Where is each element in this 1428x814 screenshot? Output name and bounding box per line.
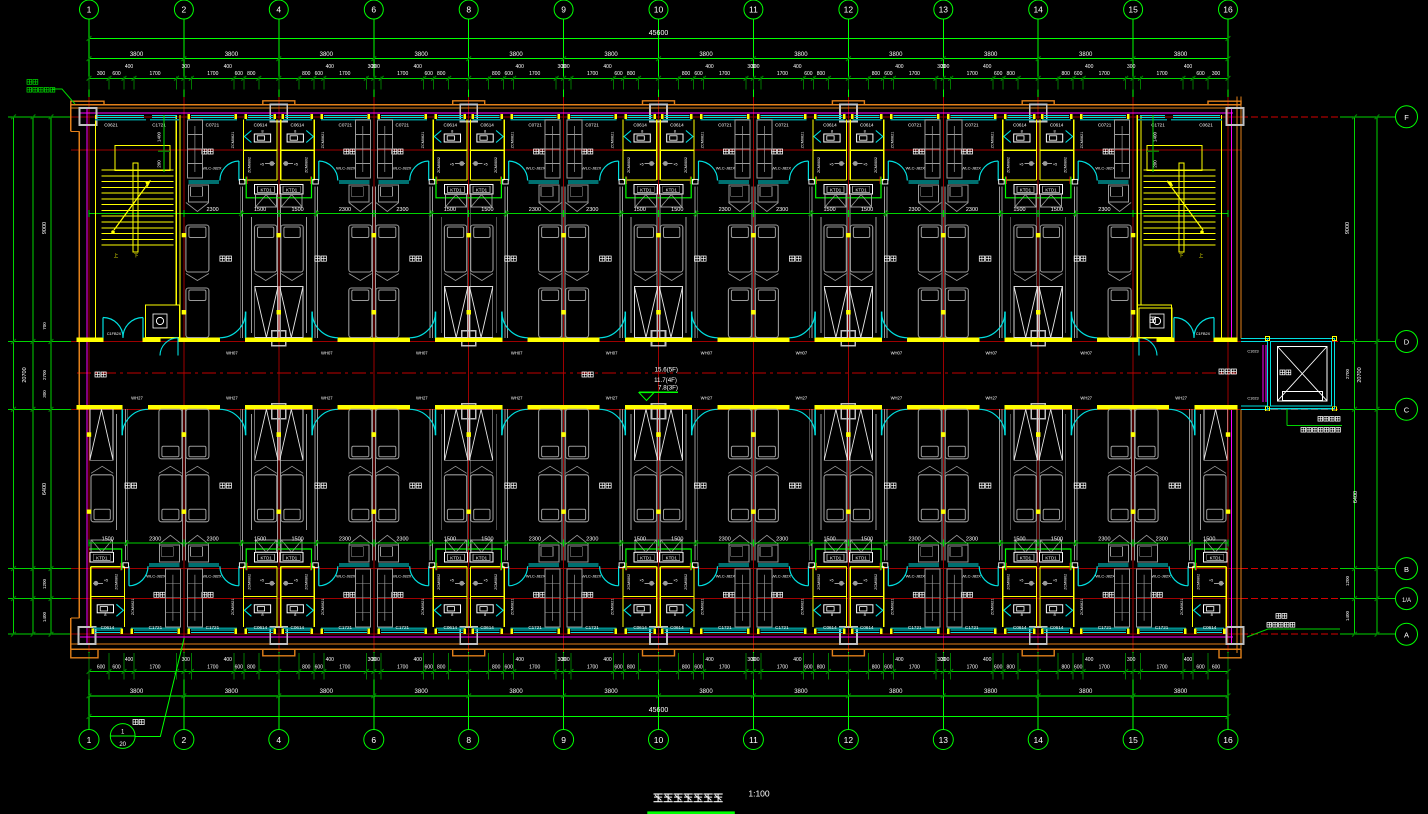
- svg-text:KTD1: KTD1: [640, 555, 652, 560]
- svg-text:1700: 1700: [207, 71, 218, 77]
- svg-text:ZCM0802: ZCM0802: [817, 574, 821, 590]
- svg-text:400: 400: [1184, 657, 1193, 663]
- svg-text:1500: 1500: [1013, 537, 1025, 543]
- svg-text:9: 9: [561, 735, 566, 745]
- svg-text:KTD1: KTD1: [1210, 555, 1222, 560]
- svg-text:300: 300: [941, 657, 950, 663]
- svg-text:WLC-J82X: WLC-J82X: [582, 573, 602, 578]
- svg-text:WLC-J82X: WLC-J82X: [962, 166, 982, 171]
- svg-text:C1721: C1721: [718, 625, 732, 630]
- svg-text:3800: 3800: [794, 52, 808, 58]
- svg-text:ZCM0802: ZCM0802: [1007, 157, 1011, 173]
- svg-text:2300: 2300: [339, 537, 351, 543]
- svg-text:1700: 1700: [777, 71, 788, 77]
- svg-text:C0614: C0614: [444, 625, 458, 630]
- svg-text:1500: 1500: [671, 537, 683, 543]
- svg-text:WLC-J82X: WLC-J82X: [906, 166, 926, 171]
- svg-text:WLC-J82X: WLC-J82X: [526, 166, 546, 171]
- svg-text:15: 15: [1128, 735, 1138, 745]
- svg-text:KTD1: KTD1: [286, 187, 298, 192]
- svg-text:600: 600: [694, 664, 703, 670]
- svg-text:300: 300: [372, 657, 381, 663]
- svg-text:WLC-J82X: WLC-J82X: [582, 166, 602, 171]
- svg-text:1700: 1700: [1099, 664, 1110, 670]
- svg-text:ZCM0802: ZCM0802: [1064, 157, 1068, 173]
- svg-text:WH27: WH27: [1080, 396, 1092, 401]
- svg-text:KTD1: KTD1: [830, 555, 842, 560]
- svg-text:600: 600: [1212, 664, 1221, 670]
- svg-text:WH07: WH07: [606, 351, 618, 356]
- svg-text:C1721: C1721: [528, 625, 542, 630]
- svg-text:3800: 3800: [699, 52, 713, 58]
- svg-text:WLC-J82X: WLC-J82X: [526, 573, 546, 578]
- svg-text:400: 400: [326, 657, 335, 663]
- svg-text:1: 1: [87, 5, 92, 15]
- svg-text:×5: ×5: [829, 163, 833, 167]
- svg-text:C1721: C1721: [1155, 625, 1169, 630]
- svg-text:C0614: C0614: [860, 123, 874, 128]
- svg-text:1700: 1700: [1156, 71, 1167, 77]
- svg-text:ZCM0802: ZCM0802: [304, 574, 308, 590]
- svg-text:300: 300: [751, 657, 760, 663]
- svg-text:ZCM0802: ZCM0802: [494, 574, 498, 590]
- svg-text:400: 400: [1085, 657, 1094, 663]
- svg-text:7.8(3F): 7.8(3F): [658, 385, 678, 392]
- svg-text:400: 400: [895, 64, 904, 70]
- svg-text:KTD1: KTD1: [1045, 187, 1057, 192]
- svg-text:1500: 1500: [1203, 537, 1215, 543]
- svg-text:800: 800: [247, 71, 256, 77]
- svg-text:400: 400: [705, 64, 714, 70]
- svg-text:ZCM0821: ZCM0821: [231, 132, 235, 149]
- svg-text:15.6(5F): 15.6(5F): [655, 367, 678, 374]
- svg-text:WLC-J82X: WLC-J82X: [146, 573, 166, 578]
- svg-text:C0721: C0721: [908, 123, 922, 128]
- svg-text:600: 600: [804, 664, 813, 670]
- svg-text:KTD1: KTD1: [666, 187, 678, 192]
- svg-text:600: 600: [235, 664, 244, 670]
- svg-text:C0621: C0621: [104, 123, 118, 128]
- svg-text:1500: 1500: [254, 537, 266, 543]
- svg-text:WLC-J82X: WLC-J82X: [1151, 573, 1171, 578]
- svg-text:WH27: WH27: [511, 396, 523, 401]
- svg-text:KTD1: KTD1: [260, 187, 272, 192]
- svg-text:C0614: C0614: [254, 625, 268, 630]
- svg-text:600: 600: [112, 71, 121, 77]
- svg-text:ZCM0802: ZCM0802: [874, 574, 878, 590]
- svg-text:C1721: C1721: [908, 625, 922, 630]
- svg-text:WH07: WH07: [1080, 351, 1092, 356]
- svg-text:1400: 1400: [1345, 610, 1350, 621]
- svg-text:WLC-J82X: WLC-J82X: [336, 573, 356, 578]
- svg-text:3800: 3800: [225, 689, 239, 695]
- svg-text:C1721: C1721: [585, 625, 599, 630]
- svg-text:C0721: C0721: [718, 123, 732, 128]
- svg-text:1:100: 1:100: [748, 789, 770, 799]
- svg-text:800: 800: [682, 71, 691, 77]
- svg-text:WH27: WH27: [321, 396, 333, 401]
- svg-text:300: 300: [182, 64, 191, 70]
- svg-text:上: 上: [1199, 252, 1204, 258]
- svg-text:200: 200: [157, 160, 162, 168]
- svg-text:600: 600: [694, 71, 703, 77]
- svg-text:ZCM0802: ZCM0802: [1064, 574, 1068, 590]
- svg-text:3800: 3800: [604, 689, 618, 695]
- svg-text:1500: 1500: [861, 537, 873, 543]
- svg-text:300: 300: [97, 71, 106, 77]
- svg-text:600: 600: [1074, 71, 1083, 77]
- svg-text:2: 2: [182, 5, 187, 15]
- svg-text:1500: 1500: [444, 537, 456, 543]
- svg-text:12: 12: [844, 5, 854, 15]
- svg-text:WH07: WH07: [416, 351, 428, 356]
- svg-text:800: 800: [872, 71, 881, 77]
- svg-text:8: 8: [466, 735, 471, 745]
- svg-text:C1023: C1023: [1247, 350, 1258, 354]
- svg-text:ZCM0821: ZCM0821: [231, 598, 235, 615]
- svg-text:600: 600: [884, 71, 893, 77]
- svg-text:1700: 1700: [587, 664, 598, 670]
- svg-text:16: 16: [1223, 5, 1233, 15]
- svg-text:1500: 1500: [1013, 207, 1025, 213]
- svg-text:ZCM0821: ZCM0821: [321, 598, 325, 615]
- svg-text:WH27: WH27: [796, 396, 808, 401]
- svg-text:400: 400: [983, 657, 992, 663]
- svg-text:×5: ×5: [1053, 163, 1057, 167]
- svg-text:C0614: C0614: [480, 625, 494, 630]
- svg-text:400: 400: [793, 64, 802, 70]
- svg-text:400: 400: [125, 657, 134, 663]
- svg-text:3800: 3800: [984, 52, 998, 58]
- svg-text:C0614: C0614: [480, 123, 494, 128]
- svg-text:1200: 1200: [42, 578, 47, 589]
- svg-text:600: 600: [1196, 664, 1205, 670]
- svg-text:800: 800: [302, 71, 311, 77]
- svg-text:ZCM0821: ZCM0821: [700, 598, 704, 615]
- svg-text:WH07: WH07: [511, 351, 523, 356]
- svg-text:2700: 2700: [1345, 368, 1350, 379]
- svg-text:3800: 3800: [509, 689, 523, 695]
- svg-text:1700: 1700: [207, 664, 218, 670]
- svg-text:300: 300: [941, 64, 950, 70]
- svg-text:WH27: WH27: [226, 396, 238, 401]
- svg-text:1500: 1500: [481, 537, 493, 543]
- svg-text:400: 400: [1184, 64, 1193, 70]
- svg-text:1500: 1500: [671, 207, 683, 213]
- svg-text:800: 800: [872, 664, 881, 670]
- svg-text:400: 400: [983, 64, 992, 70]
- svg-text:C0614: C0614: [823, 123, 837, 128]
- svg-text:KTD1: KTD1: [476, 187, 488, 192]
- svg-text:11: 11: [749, 5, 758, 15]
- svg-text:800: 800: [1062, 71, 1071, 77]
- svg-text:2300: 2300: [586, 537, 598, 543]
- svg-text:1200: 1200: [1345, 575, 1350, 586]
- svg-text:3800: 3800: [794, 689, 808, 695]
- svg-text:ZCM0802: ZCM0802: [684, 157, 688, 173]
- svg-text:4: 4: [276, 5, 281, 15]
- svg-text:KTD1: KTD1: [286, 555, 298, 560]
- svg-text:600: 600: [1196, 71, 1205, 77]
- svg-text:WLC-J82X: WLC-J82X: [772, 166, 792, 171]
- svg-text:WH27: WH27: [1175, 396, 1187, 401]
- svg-text:2: 2: [182, 735, 187, 745]
- svg-text:400: 400: [414, 64, 423, 70]
- svg-text:ZCM0821: ZCM0821: [890, 132, 894, 149]
- svg-text:600: 600: [994, 664, 1003, 670]
- svg-text:×5: ×5: [829, 578, 833, 582]
- svg-text:×5: ×5: [484, 578, 488, 582]
- svg-text:C0614: C0614: [633, 625, 647, 630]
- svg-text:ZCM0802: ZCM0802: [627, 574, 631, 590]
- svg-text:WH27: WH27: [891, 396, 903, 401]
- svg-text:600: 600: [235, 71, 244, 77]
- svg-text:1700: 1700: [909, 664, 920, 670]
- svg-text:300: 300: [1127, 64, 1136, 70]
- svg-text:×5: ×5: [1019, 163, 1023, 167]
- svg-text:ZCM0802: ZCM0802: [247, 574, 251, 590]
- svg-text:ZCM0821: ZCM0821: [421, 598, 425, 615]
- svg-text:WH27: WH27: [606, 396, 618, 401]
- svg-text:2300: 2300: [529, 537, 541, 543]
- svg-text:20: 20: [119, 742, 126, 748]
- svg-text:600: 600: [505, 71, 514, 77]
- svg-text:WLC-J82X: WLC-J82X: [772, 573, 792, 578]
- svg-text:13: 13: [939, 5, 949, 15]
- svg-text:×5: ×5: [1019, 578, 1023, 582]
- svg-text:2300: 2300: [776, 537, 788, 543]
- svg-text:2300: 2300: [966, 207, 978, 213]
- svg-text:ZCM0821: ZCM0821: [131, 598, 135, 615]
- svg-text:600: 600: [1074, 664, 1083, 670]
- svg-text:C1721: C1721: [965, 625, 979, 630]
- svg-text:300: 300: [182, 657, 191, 663]
- svg-text:600: 600: [425, 71, 434, 77]
- svg-text:2300: 2300: [339, 207, 351, 213]
- svg-text:400: 400: [1085, 64, 1094, 70]
- svg-text:ZCM0821: ZCM0821: [421, 132, 425, 149]
- svg-text:C1721: C1721: [339, 625, 353, 630]
- svg-text:1700: 1700: [1156, 664, 1167, 670]
- svg-text:800: 800: [492, 664, 501, 670]
- svg-text:WH07: WH07: [321, 351, 333, 356]
- svg-text:C0721: C0721: [585, 123, 599, 128]
- svg-text:800: 800: [1062, 664, 1071, 670]
- svg-text:400: 400: [516, 657, 525, 663]
- svg-text:600: 600: [112, 664, 121, 670]
- svg-text:2300: 2300: [586, 207, 598, 213]
- svg-text:C0614: C0614: [444, 123, 458, 128]
- svg-text:ZCM0802: ZCM0802: [115, 574, 119, 590]
- svg-text:400: 400: [414, 657, 423, 663]
- svg-text:×5: ×5: [104, 578, 108, 582]
- svg-text:1700: 1700: [777, 664, 788, 670]
- svg-text:WLC-J82X: WLC-J82X: [962, 573, 982, 578]
- svg-text:D: D: [1404, 338, 1410, 347]
- svg-text:KTD1: KTD1: [476, 555, 488, 560]
- svg-text:9: 9: [561, 5, 566, 15]
- svg-text:3800: 3800: [130, 689, 144, 695]
- svg-text:2300: 2300: [206, 207, 218, 213]
- svg-text:C0721: C0721: [528, 123, 542, 128]
- svg-text:KTD1: KTD1: [640, 187, 652, 192]
- svg-text:1700: 1700: [529, 71, 540, 77]
- svg-text:400: 400: [793, 657, 802, 663]
- svg-text:2300: 2300: [396, 537, 408, 543]
- svg-text:2300: 2300: [908, 207, 920, 213]
- svg-text:WH07: WH07: [796, 351, 808, 356]
- svg-text:ZCM0821: ZCM0821: [611, 132, 615, 149]
- svg-text:C0614: C0614: [291, 625, 305, 630]
- svg-text:×5: ×5: [294, 163, 298, 167]
- svg-text:C0614: C0614: [1013, 625, 1027, 630]
- svg-text:2300: 2300: [1098, 207, 1110, 213]
- svg-text:WLC-J82X: WLC-J82X: [202, 573, 222, 578]
- svg-text:C1023: C1023: [1247, 397, 1258, 401]
- svg-text:2300: 2300: [719, 207, 731, 213]
- svg-text:C0614: C0614: [1203, 625, 1217, 630]
- svg-text:×5: ×5: [484, 163, 488, 167]
- svg-text:1500: 1500: [1051, 537, 1063, 543]
- svg-text:600: 600: [614, 71, 623, 77]
- svg-text:WLC-J82X: WLC-J82X: [392, 573, 412, 578]
- svg-text:800: 800: [817, 71, 826, 77]
- svg-text:1400: 1400: [42, 611, 47, 622]
- svg-text:3800: 3800: [130, 52, 144, 58]
- svg-text:C0721: C0721: [396, 123, 410, 128]
- svg-text:300: 300: [1127, 657, 1136, 663]
- svg-text:1500: 1500: [1051, 207, 1063, 213]
- svg-text:WH07: WH07: [985, 351, 997, 356]
- svg-text:ZCM0802: ZCM0802: [1197, 574, 1201, 590]
- svg-text:400: 400: [603, 657, 612, 663]
- svg-text:800: 800: [302, 664, 311, 670]
- svg-text:300: 300: [561, 64, 570, 70]
- svg-text:1500: 1500: [823, 537, 835, 543]
- svg-text:600: 600: [804, 71, 813, 77]
- svg-text:C1721: C1721: [149, 625, 163, 630]
- svg-text:ZCM0821: ZCM0821: [1180, 598, 1184, 615]
- svg-text:2300: 2300: [719, 537, 731, 543]
- svg-text:45600: 45600: [649, 30, 669, 37]
- svg-text:400: 400: [224, 657, 233, 663]
- svg-text:ZCM0802: ZCM0802: [627, 157, 631, 173]
- svg-text:WLC-J82X: WLC-J82X: [1095, 166, 1115, 171]
- svg-text:3800: 3800: [1079, 689, 1093, 695]
- svg-text:800: 800: [817, 664, 826, 670]
- svg-text:KTD1: KTD1: [855, 555, 867, 560]
- svg-text:ZCM0821: ZCM0821: [321, 132, 325, 149]
- svg-text:C0721: C0721: [206, 123, 220, 128]
- svg-text:C0614: C0614: [1013, 123, 1027, 128]
- svg-text:ZCM0821: ZCM0821: [700, 132, 704, 149]
- svg-text:ZCM0802: ZCM0802: [247, 157, 251, 173]
- svg-text:ZCM0821: ZCM0821: [800, 598, 804, 615]
- svg-text:1500: 1500: [254, 207, 266, 213]
- svg-text:1700: 1700: [967, 71, 978, 77]
- svg-text:700: 700: [42, 322, 47, 330]
- svg-text:C0721: C0721: [339, 123, 353, 128]
- svg-text:3800: 3800: [320, 689, 334, 695]
- svg-text:300: 300: [372, 64, 381, 70]
- svg-text:A: A: [1404, 630, 1409, 639]
- svg-text:600: 600: [315, 71, 324, 77]
- svg-text:C1721: C1721: [396, 625, 410, 630]
- svg-text:400: 400: [516, 64, 525, 70]
- svg-text:ZCM0802: ZCM0802: [437, 574, 441, 590]
- svg-text:45600: 45600: [649, 707, 669, 714]
- svg-text:800: 800: [627, 664, 636, 670]
- svg-text:1: 1: [87, 735, 92, 745]
- svg-text:×5: ×5: [1209, 578, 1213, 582]
- svg-text:C1FB2X: C1FB2X: [107, 332, 122, 336]
- svg-text:1700: 1700: [149, 664, 160, 670]
- svg-text:800: 800: [1007, 71, 1016, 77]
- svg-text:KTD1: KTD1: [855, 187, 867, 192]
- svg-text:14: 14: [1033, 5, 1043, 15]
- svg-text:WLC-J82X: WLC-J82X: [716, 573, 736, 578]
- svg-text:3800: 3800: [415, 52, 429, 58]
- svg-text:11: 11: [749, 735, 758, 745]
- svg-text:×5: ×5: [640, 163, 644, 167]
- svg-text:800: 800: [627, 71, 636, 77]
- svg-text:400: 400: [125, 64, 134, 70]
- svg-text:10: 10: [654, 735, 664, 745]
- svg-text:1700: 1700: [149, 71, 160, 77]
- svg-text:12: 12: [844, 735, 854, 745]
- svg-text:C0614: C0614: [670, 123, 684, 128]
- svg-text:KTD1: KTD1: [96, 555, 108, 560]
- svg-text:2300: 2300: [1156, 537, 1168, 543]
- svg-text:1700: 1700: [719, 71, 730, 77]
- svg-text:WLC-J82X: WLC-J82X: [1095, 573, 1115, 578]
- svg-text:WH07: WH07: [891, 351, 903, 356]
- svg-text:C0721: C0721: [1098, 123, 1112, 128]
- svg-text:3800: 3800: [320, 52, 334, 58]
- svg-text:C0614: C0614: [860, 625, 874, 630]
- svg-text:KTD1: KTD1: [666, 555, 678, 560]
- svg-text:×5: ×5: [863, 163, 867, 167]
- svg-text:上: 上: [114, 252, 119, 258]
- svg-text:KTD1: KTD1: [450, 555, 462, 560]
- svg-text:C0614: C0614: [1050, 123, 1064, 128]
- svg-text:2300: 2300: [966, 537, 978, 543]
- svg-text:C0614: C0614: [1050, 625, 1064, 630]
- svg-text:400: 400: [326, 64, 335, 70]
- svg-text:3800: 3800: [1079, 52, 1093, 58]
- svg-text:3800: 3800: [1174, 689, 1188, 695]
- svg-text:×5: ×5: [863, 578, 867, 582]
- svg-text:ZCM0802: ZCM0802: [874, 157, 878, 173]
- svg-text:800: 800: [492, 71, 501, 77]
- svg-text:300: 300: [751, 64, 760, 70]
- svg-text:C0614: C0614: [633, 123, 647, 128]
- svg-text:ZCM0821: ZCM0821: [1080, 132, 1084, 149]
- svg-text:800: 800: [437, 664, 446, 670]
- svg-text:6400: 6400: [42, 483, 48, 495]
- svg-text:1500: 1500: [861, 207, 873, 213]
- svg-text:2700: 2700: [42, 369, 47, 380]
- svg-text:KTD1: KTD1: [450, 187, 462, 192]
- svg-text:400: 400: [705, 657, 714, 663]
- svg-text:1700: 1700: [397, 71, 408, 77]
- svg-text:2300: 2300: [908, 537, 920, 543]
- svg-text:WLC-J82X: WLC-J82X: [336, 166, 356, 171]
- svg-text:×5: ×5: [260, 578, 264, 582]
- svg-text:6: 6: [371, 735, 376, 745]
- svg-text:3800: 3800: [699, 689, 713, 695]
- svg-text:ZCM0821: ZCM0821: [1080, 598, 1084, 615]
